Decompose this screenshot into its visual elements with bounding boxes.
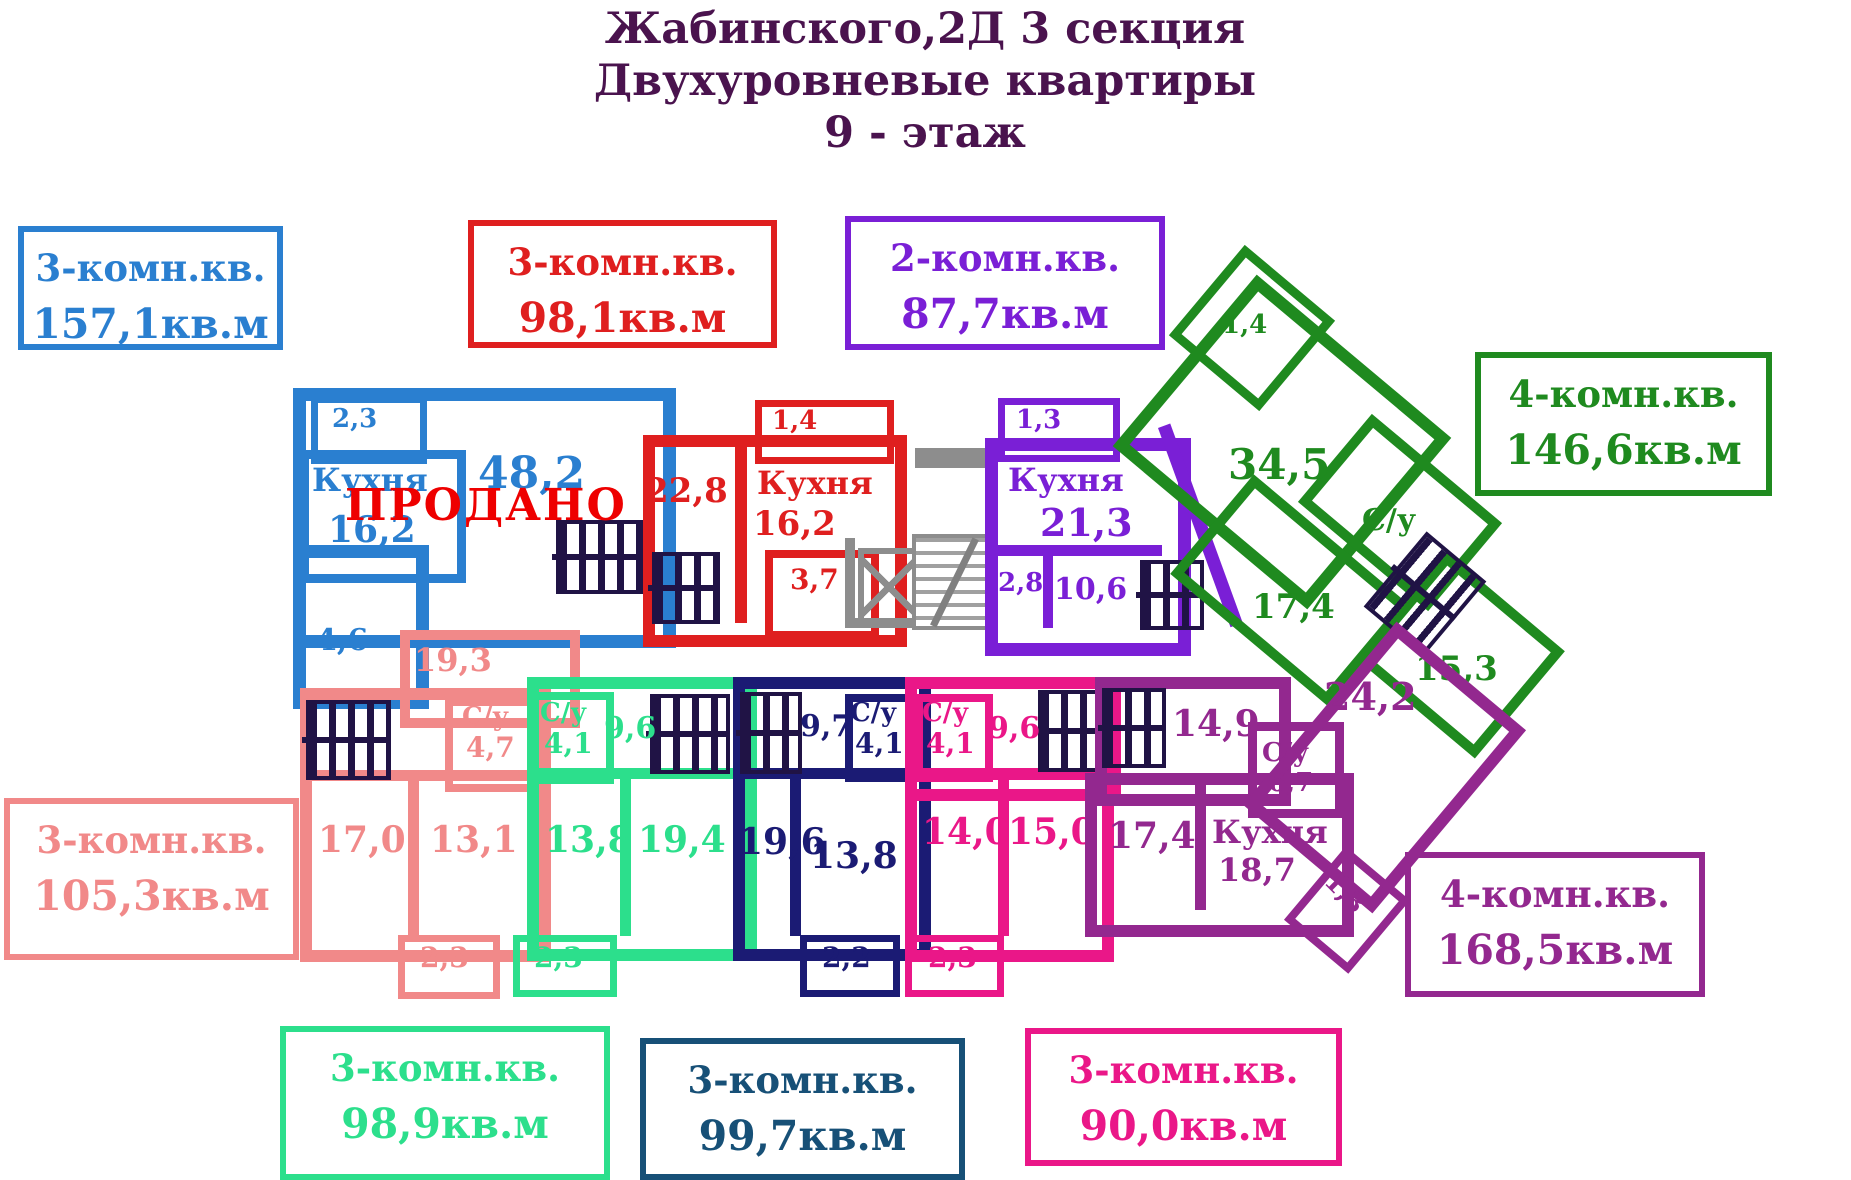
legend-blue: 3-комн.кв. 157,1кв.м bbox=[18, 226, 283, 350]
room-area-label: 9,6 bbox=[604, 714, 656, 744]
apartment-magenta-outline bbox=[905, 768, 1114, 962]
room-area-label: 9,6 bbox=[988, 714, 1040, 744]
room-area-label: 6,7 bbox=[1268, 770, 1313, 796]
room-area-label: 2,3 bbox=[332, 406, 377, 432]
room-area-label: 10,6 bbox=[1054, 575, 1127, 605]
apartment-area-label: 168,5кв.м bbox=[1411, 926, 1699, 974]
room-area-label: 2,2 bbox=[822, 944, 871, 972]
room-area-label: 19,3 bbox=[414, 644, 492, 676]
apartment-area-label: 90,0кв.м bbox=[1031, 1102, 1336, 1150]
apartment-area-label: 146,6кв.м bbox=[1481, 426, 1766, 474]
wall bbox=[1043, 556, 1053, 628]
stairs-icon bbox=[740, 692, 802, 774]
legend-magenta: 3-комн.кв. 90,0кв.м bbox=[1025, 1028, 1342, 1166]
room-area-label: 13,8 bbox=[545, 822, 633, 858]
apartment-type-label: 3-комн.кв. bbox=[24, 246, 277, 290]
room-area-label: 1,3 bbox=[1016, 407, 1061, 433]
apartment-type-label: 3-комн.кв. bbox=[1031, 1048, 1336, 1092]
room-area-label: 4,7 bbox=[466, 734, 515, 762]
apartment-area-label: 98,9кв.м bbox=[286, 1100, 604, 1148]
room-name-label: С/у bbox=[1362, 506, 1416, 536]
room-area-label: 4,6 bbox=[316, 626, 368, 656]
stairs-icon bbox=[1038, 690, 1100, 772]
stairs-icon bbox=[1102, 688, 1166, 768]
room-area-label: 2,3 bbox=[534, 944, 583, 972]
room-name-label: С/у bbox=[922, 700, 969, 726]
page-title-line3: 9 - этаж bbox=[350, 112, 1500, 155]
room-area-label: 2,8 bbox=[998, 570, 1043, 596]
legend-navy: 3-комн.кв. 99,7кв.м bbox=[640, 1038, 965, 1180]
apartment-area-label: 87,7кв.м bbox=[851, 290, 1159, 338]
apartment-type-label: 3-комн.кв. bbox=[10, 818, 293, 862]
stairs-icon bbox=[650, 694, 730, 774]
legend-violet: 2-комн.кв. 87,7кв.м bbox=[845, 216, 1165, 350]
legend-green: 4-комн.кв. 146,6кв.м bbox=[1475, 352, 1772, 496]
room-area-label: 34,5 bbox=[1228, 444, 1330, 486]
apartment-type-label: 3-комн.кв. bbox=[474, 240, 771, 284]
room-area-label: 4,1 bbox=[544, 730, 593, 758]
wall bbox=[1195, 780, 1206, 910]
room-area-label: 22,8 bbox=[645, 474, 728, 508]
floor-plan: Жабинского,2Д 3 секция Двухуровневые ква… bbox=[0, 0, 1851, 1180]
corridor-wall bbox=[845, 538, 855, 628]
room-name-label: С/у bbox=[540, 700, 587, 726]
room-area-label: 19,4 bbox=[638, 822, 726, 858]
apartment-area-label: 157,1кв.м bbox=[24, 300, 277, 348]
room-name-label: Кухня bbox=[757, 467, 873, 499]
room-area-label: 13,8 bbox=[810, 838, 898, 874]
legend-spring: 3-комн.кв. 98,9кв.м bbox=[280, 1026, 610, 1180]
room-area-label: 2,3 bbox=[928, 944, 977, 972]
sold-stamp: ПРОДАНО bbox=[345, 484, 627, 528]
page-title-line1: Жабинского,2Д 3 секция bbox=[350, 8, 1500, 51]
legend-red: 3-комн.кв. 98,1кв.м bbox=[468, 220, 777, 348]
room-area-label: 17,4 bbox=[1252, 590, 1335, 624]
legend-plum: 4-комн.кв. 168,5кв.м bbox=[1405, 852, 1705, 997]
corridor-wall bbox=[915, 448, 988, 468]
room-area-label: 21,3 bbox=[1040, 504, 1133, 542]
wall bbox=[992, 545, 1162, 556]
room-area-label: 17,4 bbox=[1108, 818, 1196, 854]
apartment-area-label: 98,1кв.м bbox=[474, 294, 771, 342]
stairs-icon bbox=[652, 552, 720, 624]
room-area-label: 3,7 bbox=[790, 566, 839, 594]
apartment-area-label: 99,7кв.м bbox=[646, 1112, 959, 1160]
room-area-label: 16,2 bbox=[753, 507, 836, 541]
room-name-label: С/у bbox=[1262, 740, 1309, 766]
apartment-area-label: 105,3кв.м bbox=[10, 872, 293, 920]
room-area-label: 1,4 bbox=[772, 408, 817, 434]
apartment-type-label: 3-комн.кв. bbox=[286, 1046, 604, 1090]
room-area-label: 9,7 bbox=[800, 712, 852, 742]
room-name-label: Кухня bbox=[1008, 464, 1124, 496]
stairs-icon bbox=[556, 520, 646, 594]
room-area-label: 15,0 bbox=[1008, 814, 1096, 850]
room-area-label: 13,1 bbox=[430, 822, 518, 858]
room-name-label: С/у bbox=[462, 704, 509, 730]
page-title-line2: Двухуровневые квартиры bbox=[350, 60, 1500, 103]
apartment-type-label: 4-комн.кв. bbox=[1481, 372, 1766, 416]
room-area-label: 18,7 bbox=[1218, 854, 1296, 886]
apartment-type-label: 3-комн.кв. bbox=[646, 1058, 959, 1102]
wall bbox=[998, 780, 1009, 936]
room-area-label: 14,0 bbox=[922, 814, 1010, 850]
stairs-icon bbox=[306, 700, 391, 780]
elevator-icon bbox=[858, 548, 920, 626]
apartment-type-label: 4-комн.кв. bbox=[1411, 872, 1699, 916]
apartment-type-label: 2-комн.кв. bbox=[851, 236, 1159, 280]
room-name-label: Кухня bbox=[1212, 816, 1328, 848]
wall bbox=[408, 780, 419, 936]
wall bbox=[735, 447, 747, 623]
room-area-label: 17,0 bbox=[318, 822, 406, 858]
room-area-label: 24,2 bbox=[1324, 678, 1417, 716]
room-area-label: 4,1 bbox=[926, 730, 975, 758]
room-area-label: 14,9 bbox=[1172, 706, 1260, 742]
room-area-label: 4,1 bbox=[855, 730, 904, 758]
legend-salmon: 3-комн.кв. 105,3кв.м bbox=[4, 798, 299, 960]
room-area-label: 2,3 bbox=[420, 944, 469, 972]
room-area-label: 1,4 bbox=[1222, 312, 1267, 338]
room-name-label: С/у bbox=[850, 700, 897, 726]
